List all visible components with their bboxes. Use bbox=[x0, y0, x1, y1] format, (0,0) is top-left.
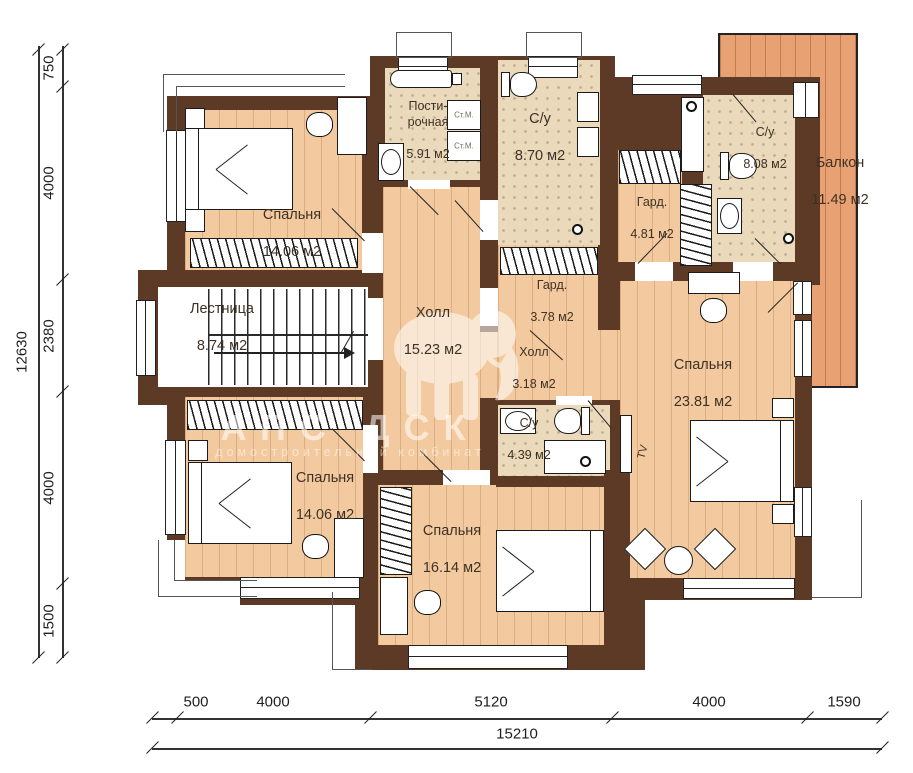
dim-label: 1590 bbox=[827, 694, 860, 711]
dim-label: 4000 bbox=[692, 694, 725, 711]
room-name: Гард. bbox=[537, 278, 567, 292]
room-label-bedroom-1614: Спальня 16.14 м2 bbox=[423, 503, 481, 577]
sink-cabinet bbox=[577, 127, 599, 157]
bay-outline bbox=[526, 32, 582, 58]
room-name: С/у bbox=[756, 125, 775, 139]
balcony-door bbox=[793, 281, 812, 315]
bed bbox=[188, 462, 292, 544]
shower-icon bbox=[580, 456, 591, 467]
shower-icon bbox=[686, 101, 697, 112]
dim-label: 500 bbox=[183, 694, 208, 711]
bed bbox=[496, 530, 604, 612]
sink bbox=[381, 149, 401, 175]
room-name: Спальня bbox=[674, 356, 732, 372]
room-name: Лестница bbox=[190, 300, 254, 316]
window bbox=[794, 320, 812, 377]
door-opening bbox=[480, 200, 498, 240]
shower-icon bbox=[783, 233, 794, 244]
toilet-tank bbox=[581, 407, 590, 435]
nightstand bbox=[188, 440, 208, 461]
room-area: 15.23 м2 bbox=[404, 342, 462, 358]
floor-plan: TV Ст.М. Ст.М. bbox=[0, 0, 913, 773]
stair-arrow-head bbox=[344, 347, 355, 359]
desk bbox=[337, 97, 367, 155]
room-label-bath-439: С/у 4.39 м2 bbox=[507, 399, 550, 463]
dim-label-left-total: 12630 bbox=[14, 331, 31, 373]
room-area: 3.78 м2 bbox=[530, 310, 573, 324]
ironing-board-leg bbox=[452, 73, 462, 85]
room-name: Спальня bbox=[296, 469, 354, 485]
nightstand bbox=[185, 108, 205, 129]
chair bbox=[414, 590, 441, 615]
dim-label: 4000 bbox=[256, 694, 289, 711]
dim-label: 1500 bbox=[41, 604, 58, 637]
toilet-tank bbox=[720, 152, 729, 180]
bed-headboard bbox=[590, 530, 604, 612]
room-area: 16.14 м2 bbox=[423, 560, 481, 576]
window bbox=[528, 56, 578, 78]
room-name: Балкон bbox=[816, 154, 865, 170]
bed-headboard bbox=[188, 462, 202, 544]
room-area: 14.06 м2 bbox=[296, 507, 354, 523]
dim-label: 4000 bbox=[41, 471, 58, 504]
room-label-hall-small: Холл 3.18 м2 bbox=[512, 328, 555, 392]
room-label-stairs: Лестница 8.74 м2 bbox=[190, 281, 254, 355]
chair bbox=[306, 112, 333, 137]
desk bbox=[380, 577, 408, 635]
wall bbox=[496, 476, 612, 487]
nightstand bbox=[185, 209, 205, 232]
bed-headboard bbox=[780, 420, 794, 502]
door-opening bbox=[362, 233, 383, 273]
dim-line-left-total bbox=[38, 46, 40, 658]
door-opening bbox=[635, 262, 673, 281]
room-label-bath-808: С/у 8.08 м2 bbox=[743, 108, 786, 172]
desk bbox=[334, 518, 364, 578]
room-area: 4.81 м2 bbox=[630, 227, 673, 241]
room-name: Пости- рочная bbox=[408, 99, 449, 129]
nightstand bbox=[772, 398, 794, 418]
bed-headboard bbox=[185, 128, 199, 210]
room-area: 8.08 м2 bbox=[743, 157, 786, 171]
room-label-bedroom-topleft: Спальня 14.06 м2 bbox=[263, 187, 321, 261]
bed bbox=[690, 420, 794, 502]
dim-label-bottom-total: 15210 bbox=[496, 726, 538, 743]
room-name: Холл bbox=[416, 304, 450, 320]
room-label-bath-870: С/у 8.70 м2 bbox=[515, 91, 565, 165]
roof-outline bbox=[332, 592, 372, 670]
room-area: 23.81 м2 bbox=[674, 394, 732, 410]
roof-outline bbox=[812, 500, 862, 598]
wardrobe-rack bbox=[680, 184, 712, 266]
washing-machine: Ст.М. bbox=[447, 100, 481, 130]
window bbox=[632, 75, 702, 95]
dim-label: 5120 bbox=[474, 694, 507, 711]
washer-label: Ст.М. bbox=[448, 142, 480, 151]
room-label-balcony: Балкон 11.49 м2 bbox=[811, 135, 868, 209]
room-area: 5.91 м2 bbox=[406, 147, 449, 161]
dim-label: 2380 bbox=[41, 319, 58, 352]
washer-label: Ст.М. bbox=[448, 111, 480, 120]
desk bbox=[688, 272, 740, 294]
washing-machine: Ст.М. bbox=[447, 131, 481, 161]
room-area: 11.49 м2 bbox=[811, 192, 868, 208]
sink-cabinet bbox=[577, 92, 599, 122]
room-area: 14.06 м2 bbox=[263, 244, 321, 260]
nightstand bbox=[772, 504, 794, 524]
balcony-door bbox=[793, 82, 819, 118]
dim-label: 4000 bbox=[41, 166, 58, 199]
room-name: С/у bbox=[520, 416, 539, 430]
room-name: Гард. bbox=[637, 195, 667, 209]
room-name: Холл bbox=[519, 345, 548, 359]
door-opening bbox=[443, 470, 490, 485]
dim-line-left-segments bbox=[62, 46, 64, 658]
shower-tray bbox=[544, 440, 606, 474]
room-label-laundry: Пости- рочная 5.91 м2 bbox=[406, 82, 449, 162]
window bbox=[408, 645, 568, 669]
door-opening bbox=[408, 180, 450, 189]
room-area: 3.18 м2 bbox=[512, 377, 555, 391]
window bbox=[794, 487, 812, 537]
dim-label: 750 bbox=[41, 55, 58, 80]
room-label-bedroom-bottomleft: Спальня 14.06 м2 bbox=[296, 450, 354, 524]
bay-outline bbox=[396, 32, 452, 58]
wall bbox=[604, 470, 630, 615]
room-label-hall-main: Холл 15.23 м2 bbox=[404, 285, 462, 359]
dim-line-bottom-total bbox=[152, 748, 882, 750]
window bbox=[136, 300, 156, 376]
shower-icon bbox=[572, 224, 583, 235]
room-name: С/у bbox=[529, 110, 551, 126]
chair bbox=[302, 534, 329, 559]
watermark-brand: АПС ДСК bbox=[220, 407, 479, 449]
room-label-bedroom-master: Спальня 23.81 м2 bbox=[674, 337, 732, 411]
window bbox=[166, 130, 187, 222]
room-name: Спальня bbox=[263, 206, 321, 222]
window bbox=[165, 440, 186, 535]
room-area: 8.70 м2 bbox=[515, 148, 565, 164]
dim-line-bottom-segments bbox=[152, 718, 882, 720]
window bbox=[683, 578, 795, 599]
sink bbox=[720, 203, 739, 229]
toilet-bowl bbox=[554, 408, 581, 434]
room-label-wardrobe-378: Гард. 3.78 м2 bbox=[530, 261, 573, 325]
room-area: 8.74 м2 bbox=[197, 338, 247, 354]
chair bbox=[700, 298, 727, 323]
room-name: Спальня bbox=[423, 522, 481, 538]
coffee-table bbox=[664, 546, 693, 575]
toilet-tank bbox=[501, 72, 510, 97]
wardrobe-rack bbox=[380, 487, 412, 575]
roof-outline bbox=[174, 540, 257, 581]
room-label-wardrobe-481: Гард. 4.81 м2 bbox=[630, 178, 673, 242]
room-area: 4.39 м2 bbox=[507, 448, 550, 462]
tv-stand bbox=[620, 415, 632, 473]
